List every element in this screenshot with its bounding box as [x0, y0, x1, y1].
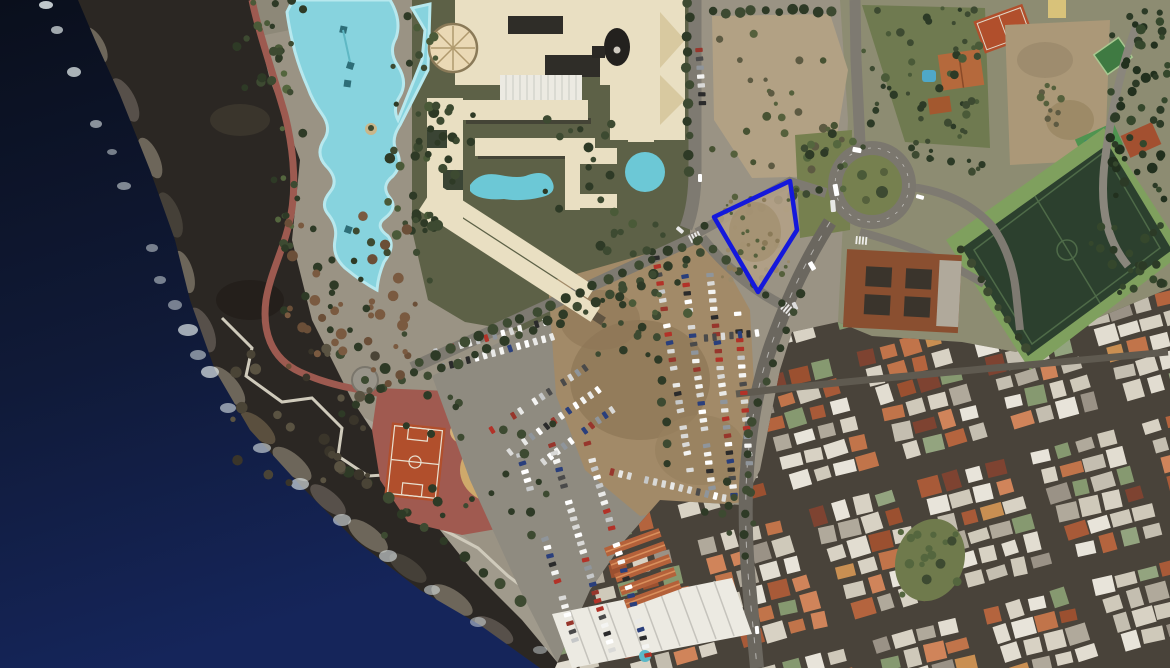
- bush: [935, 84, 943, 92]
- tree: [437, 363, 446, 372]
- bush: [1110, 112, 1120, 122]
- tree: [453, 359, 463, 369]
- tree: [634, 260, 644, 270]
- bush: [273, 411, 282, 420]
- bush: [1048, 108, 1053, 113]
- bush: [642, 246, 651, 255]
- tree: [994, 304, 1001, 311]
- parked-car: [725, 450, 733, 455]
- surf-foam-patch: [333, 514, 351, 526]
- bush: [1149, 275, 1157, 283]
- bush: [971, 45, 976, 50]
- resort-pool: [470, 173, 554, 200]
- bush: [907, 39, 914, 46]
- bush: [1121, 61, 1129, 69]
- tree: [543, 316, 553, 326]
- bush: [287, 89, 293, 95]
- bush: [601, 323, 606, 328]
- tree: [683, 98, 693, 108]
- tree: [826, 6, 836, 16]
- bush: [849, 138, 857, 146]
- bush: [1057, 95, 1065, 103]
- bush: [286, 364, 292, 370]
- bush: [1120, 177, 1129, 186]
- vehicle: [755, 626, 760, 634]
- bush: [606, 171, 615, 180]
- bush: [371, 367, 376, 372]
- tree: [744, 450, 752, 458]
- bush: [652, 310, 658, 316]
- parked-car: [736, 338, 744, 343]
- bush: [434, 140, 440, 146]
- dome-skylight: [614, 47, 621, 54]
- bush: [413, 249, 420, 256]
- bush: [454, 137, 460, 143]
- bush: [403, 422, 410, 429]
- bush: [385, 153, 396, 164]
- bush: [970, 6, 977, 13]
- parked-car: [697, 74, 705, 79]
- bush: [597, 196, 604, 203]
- bush: [247, 350, 256, 359]
- satellite-map-viewport[interactable]: [0, 0, 1170, 668]
- bush: [657, 292, 662, 297]
- bush: [600, 298, 605, 303]
- bush: [976, 167, 981, 172]
- bush: [969, 168, 975, 174]
- parked-car: [712, 323, 720, 328]
- bush: [936, 559, 946, 569]
- surf-foam-patch: [424, 585, 440, 595]
- parked-car: [695, 48, 703, 53]
- bush: [950, 70, 959, 79]
- tree: [709, 7, 717, 15]
- tree: [813, 7, 824, 18]
- parked-car: [716, 366, 724, 371]
- tree: [430, 350, 441, 361]
- bush: [584, 142, 594, 152]
- bush: [444, 155, 452, 163]
- bush: [965, 11, 971, 17]
- bush: [365, 473, 370, 478]
- bush: [1133, 66, 1141, 74]
- surf-foam-patch: [533, 646, 547, 654]
- bush: [337, 394, 344, 401]
- bush: [1153, 74, 1159, 80]
- bush: [1045, 83, 1050, 88]
- bush: [820, 57, 827, 64]
- tree: [683, 150, 693, 160]
- bush: [617, 229, 623, 235]
- bush: [402, 224, 412, 234]
- apartment-building-roundabout: [843, 249, 962, 333]
- bush: [840, 185, 847, 192]
- bush: [331, 339, 339, 347]
- bush: [281, 70, 287, 76]
- bush: [701, 508, 709, 516]
- bush: [917, 105, 924, 112]
- bush: [820, 149, 828, 157]
- bush: [397, 320, 408, 331]
- bush: [427, 125, 434, 132]
- tree: [777, 344, 785, 352]
- bush: [774, 102, 778, 106]
- bush: [898, 529, 904, 535]
- bush: [919, 562, 925, 568]
- resort-pool-east: [625, 152, 665, 192]
- bush: [784, 265, 788, 269]
- tree: [591, 297, 601, 307]
- bush: [396, 162, 405, 171]
- tree: [558, 310, 568, 320]
- bush: [272, 0, 279, 7]
- bush: [683, 308, 693, 318]
- tree: [799, 4, 809, 14]
- bush: [1136, 24, 1146, 34]
- bush: [324, 351, 330, 357]
- bush: [390, 64, 395, 69]
- bush: [308, 349, 314, 355]
- tree: [721, 9, 731, 19]
- bush: [778, 114, 786, 122]
- tree: [533, 307, 543, 317]
- bush: [828, 129, 837, 138]
- bush: [452, 404, 459, 411]
- tree: [815, 186, 823, 194]
- bush: [1051, 86, 1056, 91]
- bush: [368, 312, 374, 318]
- tree: [683, 47, 692, 56]
- tree: [415, 358, 424, 367]
- bush: [447, 394, 453, 400]
- bush: [526, 507, 535, 516]
- bush: [947, 536, 956, 545]
- bush: [1111, 225, 1117, 231]
- bush: [1128, 268, 1134, 274]
- bush: [628, 219, 637, 228]
- parked-car: [720, 399, 728, 404]
- bush: [1139, 150, 1147, 158]
- parked-car: [704, 334, 709, 342]
- bush: [748, 78, 754, 84]
- tree: [701, 222, 709, 230]
- bush: [795, 56, 803, 64]
- tree: [573, 302, 582, 311]
- bush: [327, 326, 334, 333]
- bush: [353, 227, 360, 234]
- bush: [375, 309, 386, 320]
- bush: [709, 146, 715, 152]
- bush: [1150, 116, 1158, 124]
- parked-car: [734, 311, 742, 316]
- bush: [469, 496, 475, 502]
- bush: [881, 84, 886, 89]
- tree: [775, 8, 783, 16]
- bush: [861, 49, 866, 54]
- tree: [787, 4, 798, 15]
- bush: [1117, 290, 1122, 295]
- bush: [354, 469, 365, 480]
- bush: [275, 217, 281, 223]
- bush: [334, 461, 346, 473]
- bush: [527, 531, 536, 540]
- resort-courtyard: [545, 55, 600, 77]
- parked-car: [741, 408, 749, 413]
- bush: [440, 513, 446, 519]
- tree: [663, 261, 673, 271]
- parked-car: [740, 391, 748, 396]
- bush: [1107, 88, 1115, 96]
- parked-car: [660, 306, 668, 311]
- tree: [663, 439, 672, 448]
- bush: [310, 226, 317, 233]
- tree: [741, 552, 748, 559]
- surf-foam-patch: [168, 300, 182, 310]
- bush: [390, 147, 398, 155]
- bush: [1140, 234, 1150, 244]
- bush: [860, 144, 866, 150]
- roundabout-bush: [862, 196, 870, 204]
- bush: [416, 138, 423, 145]
- bush: [1055, 110, 1061, 116]
- tree: [662, 418, 671, 427]
- bush: [750, 30, 758, 38]
- bush: [718, 510, 726, 518]
- tree: [802, 190, 810, 198]
- tree: [745, 5, 755, 15]
- tree: [747, 417, 757, 427]
- bush: [287, 250, 298, 261]
- bush: [253, 21, 262, 30]
- tree: [709, 245, 718, 254]
- bush: [874, 7, 881, 14]
- bush: [243, 35, 249, 41]
- bush: [1112, 141, 1119, 148]
- parked-car: [681, 434, 689, 439]
- bush: [887, 86, 892, 91]
- bush: [250, 363, 261, 374]
- bush: [280, 126, 285, 131]
- tree: [515, 331, 523, 339]
- roundabout-bush: [857, 170, 867, 180]
- bush: [768, 163, 775, 170]
- bush: [890, 91, 898, 99]
- bush: [232, 455, 242, 465]
- bush: [732, 194, 738, 200]
- tree: [618, 269, 627, 278]
- parked-car: [710, 307, 718, 311]
- parked-car: [691, 350, 699, 355]
- bush: [543, 491, 550, 498]
- bush: [380, 363, 391, 374]
- bush: [328, 304, 333, 309]
- bush: [1147, 163, 1158, 174]
- scrub-dot: [721, 275, 724, 278]
- bush: [872, 107, 879, 114]
- bush: [1138, 261, 1147, 270]
- parked-car: [727, 467, 735, 472]
- bush: [367, 238, 375, 246]
- bush: [634, 332, 642, 340]
- tree: [978, 276, 985, 283]
- bush: [953, 531, 959, 537]
- parked-car: [744, 443, 752, 447]
- tree: [983, 287, 992, 296]
- bush: [450, 170, 460, 180]
- bush: [388, 291, 399, 302]
- tree: [762, 6, 770, 14]
- bush: [393, 344, 398, 349]
- bush: [789, 90, 794, 95]
- bush: [361, 478, 372, 489]
- scrub-dot: [740, 215, 745, 220]
- surf-foam-patch: [51, 26, 63, 34]
- bush: [787, 260, 790, 263]
- tree: [735, 7, 746, 18]
- bush: [762, 112, 771, 121]
- bush: [288, 41, 294, 47]
- tree: [488, 324, 499, 335]
- tree: [658, 376, 667, 385]
- bush: [908, 73, 912, 77]
- bush: [831, 122, 838, 129]
- bush: [962, 110, 970, 118]
- bush: [1157, 10, 1163, 16]
- bush: [385, 380, 392, 387]
- bush: [413, 217, 419, 223]
- resort-mid-wing: [463, 100, 588, 120]
- parked-car: [729, 332, 733, 340]
- bush: [403, 12, 411, 20]
- bush: [1141, 73, 1151, 83]
- bush: [781, 129, 789, 137]
- bush: [1130, 285, 1138, 293]
- bush: [1135, 40, 1143, 48]
- surf-foam-patch: [117, 182, 131, 190]
- bush: [1116, 102, 1125, 111]
- parked-car: [737, 355, 745, 360]
- bush: [520, 449, 530, 459]
- bush: [618, 320, 624, 326]
- tree: [696, 248, 705, 257]
- tree: [445, 343, 455, 353]
- bush: [301, 292, 309, 300]
- bush: [952, 21, 956, 25]
- bush: [963, 130, 968, 135]
- tree: [529, 326, 538, 335]
- bush: [393, 273, 404, 284]
- tree: [499, 336, 509, 346]
- bush: [907, 534, 915, 542]
- surf-foam-patch: [178, 324, 198, 336]
- bush: [1161, 196, 1168, 203]
- bush: [723, 477, 731, 485]
- scrub-dot: [747, 243, 751, 247]
- bush: [875, 102, 879, 106]
- bush: [467, 138, 475, 146]
- parked-car: [705, 460, 713, 465]
- bush: [320, 477, 326, 483]
- tree: [440, 537, 448, 545]
- bush: [1126, 13, 1133, 20]
- bush: [595, 351, 601, 357]
- tree: [741, 510, 749, 518]
- tree: [471, 351, 479, 359]
- bush: [726, 248, 731, 253]
- bush: [912, 151, 920, 159]
- bush: [652, 221, 658, 227]
- bush: [298, 222, 304, 228]
- bush: [286, 479, 293, 486]
- bush: [446, 104, 454, 112]
- bush: [1138, 104, 1146, 112]
- bush: [415, 51, 423, 59]
- bush: [957, 134, 962, 139]
- bush: [1156, 187, 1162, 193]
- bush: [423, 391, 432, 400]
- bush: [740, 531, 745, 536]
- bush: [517, 429, 526, 438]
- tree: [605, 290, 614, 299]
- bush: [837, 163, 844, 170]
- bush: [556, 319, 565, 328]
- parked-car: [709, 298, 717, 303]
- bush: [363, 305, 371, 313]
- bush: [601, 131, 609, 139]
- scrub-dot: [768, 231, 773, 236]
- map-canvas[interactable]: [0, 0, 1170, 668]
- tree: [648, 256, 656, 264]
- tree: [649, 271, 657, 279]
- scrub-dot: [729, 199, 733, 203]
- bush: [427, 430, 435, 438]
- parked-car: [723, 425, 731, 430]
- bush: [940, 6, 944, 10]
- bush: [392, 230, 402, 240]
- bush: [241, 84, 248, 91]
- bush: [1159, 34, 1165, 40]
- bush: [422, 228, 427, 233]
- tree: [479, 568, 489, 578]
- bush: [264, 20, 270, 26]
- scrub-dot: [755, 239, 759, 243]
- dirt-field-mottle: [1046, 100, 1094, 140]
- tree: [778, 299, 786, 307]
- bush: [250, 0, 256, 6]
- bush: [1156, 120, 1164, 128]
- tree: [587, 281, 597, 291]
- bush: [267, 76, 276, 85]
- bush: [1108, 260, 1117, 269]
- parked-car: [683, 291, 691, 296]
- scrub-dot: [726, 204, 729, 207]
- bush: [299, 5, 307, 13]
- bush: [585, 182, 593, 190]
- bush: [881, 73, 890, 82]
- bush: [428, 484, 437, 493]
- bush: [975, 42, 983, 50]
- bush: [281, 244, 289, 252]
- surf-foam-patch: [190, 350, 206, 360]
- bush: [1126, 250, 1134, 258]
- bush: [370, 351, 380, 361]
- tree: [460, 551, 471, 562]
- tree: [482, 344, 492, 354]
- roundabout-island: [842, 155, 902, 215]
- bush: [358, 277, 363, 282]
- bush: [354, 343, 363, 352]
- bush: [607, 120, 615, 128]
